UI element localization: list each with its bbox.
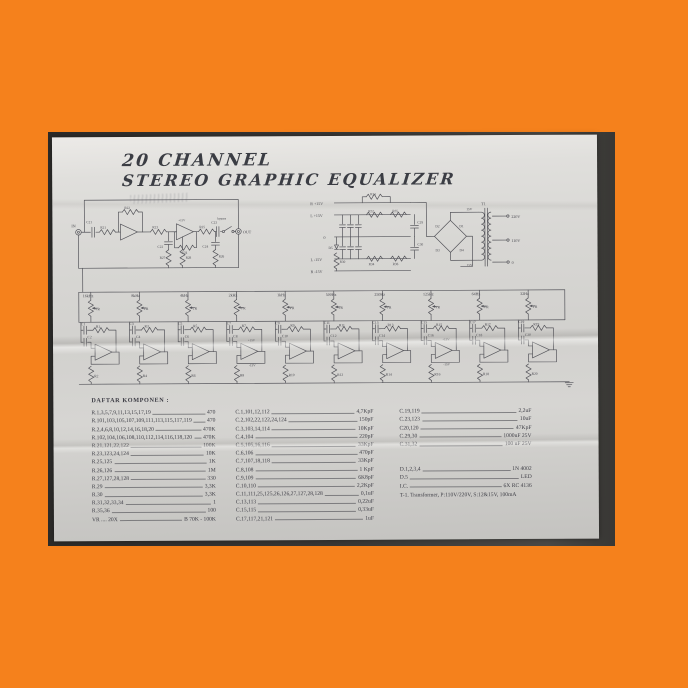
d4-label: D4 [460, 248, 464, 252]
freq-label: 4kHz [180, 293, 189, 298]
freq-label: 16kHz [83, 293, 94, 298]
res-label: R9 [290, 324, 294, 328]
component-value: 33KpF [358, 458, 374, 464]
res-label: R4 [143, 374, 147, 378]
c30-label: C30 [418, 242, 424, 246]
cap-label: C1 [81, 322, 85, 326]
component-designator: C.1,101,12,112 [235, 409, 269, 415]
leader-line [410, 486, 501, 487]
filter-bottom-rail [79, 382, 569, 385]
leader-line [126, 503, 212, 504]
minus-rail-label: -15V [249, 363, 256, 367]
cap-label: C18 [476, 333, 482, 337]
res-label: R2 [94, 374, 98, 378]
component-designator: R.25,125 [92, 459, 113, 465]
minus-rail-label: -15V [443, 362, 450, 366]
tap-0v-label: 0 [512, 260, 514, 265]
c24-label: C24 [203, 245, 209, 249]
transformer-spec-line: T-1. Transformer, P:110V/220V, S:12&15V,… [400, 491, 532, 498]
plus-rail-label: +15V [442, 337, 450, 341]
filter-channel-8: 125HzVRC15R15C16R16+15V-15V [421, 290, 459, 382]
r27-label: R27 [160, 256, 166, 260]
page-title-line1: 20 CHANNEL [121, 150, 273, 171]
freq-label: 250Hz [374, 292, 385, 297]
r23-label: R23 [152, 225, 158, 229]
cap-label: C5 [178, 322, 182, 326]
d1-label: D1 [459, 224, 463, 228]
comp-col-2: C.1,101,12,1124,7KpFC.2,102,22,122,24,12… [235, 407, 374, 522]
cap-label: C11 [324, 321, 330, 325]
component-value: 470pF [359, 450, 373, 456]
component-designator: C.5,105,16,116 [236, 442, 270, 448]
component-value: 3,3K [205, 492, 216, 498]
vr-label: VR [386, 306, 392, 310]
leader-line [105, 495, 203, 497]
r30-label: R30 [340, 260, 346, 264]
res-label: R10 [289, 373, 295, 377]
leader-line [422, 420, 518, 422]
schematic-paper: 20 CHANNEL STEREO GRAPHIC EQUALIZER IN [52, 135, 599, 542]
component-designator: R.30 [92, 492, 103, 498]
leader-line [156, 430, 201, 431]
leader-line [255, 470, 357, 472]
comp-col-3: C.19,1192,2uFC.23,12310uFC20,12047KpFC.2… [399, 406, 531, 498]
component-designator: C.6,106 [236, 451, 254, 457]
filter-capacitor-bank [339, 215, 361, 259]
res-label: R12 [337, 373, 343, 377]
cap-label: C20 [525, 333, 531, 337]
filter-channel-2: 8kHzVRC3R3C4R4 [129, 292, 167, 384]
component-value: 6X RC 4136 [503, 482, 531, 488]
freq-label: 500Hz [326, 292, 337, 297]
component-value: 100 [207, 508, 215, 514]
component-row: VR .... 20XB 70K - 100K [92, 514, 216, 523]
res-label: R13 [388, 323, 394, 327]
filter-channel-6: 500HzVRC11R11C12R12 [324, 291, 362, 383]
leader-line [325, 494, 359, 495]
secondary-15v-bottom-label: 15V [467, 263, 473, 267]
component-value: 1uF [365, 515, 374, 521]
freq-label: 2kHz [229, 292, 238, 297]
component-designator: C.7,107,18,118 [236, 459, 270, 465]
leader-line [419, 445, 503, 446]
res-label: R3 [145, 324, 149, 328]
out-jack-label: OUT [243, 229, 252, 234]
component-value: 1M [208, 467, 216, 473]
res-label: R18 [483, 372, 489, 376]
filter-channel-10: 32HzVRC19R19C20R20 [518, 290, 556, 382]
filter-top-bus [79, 290, 565, 293]
filter-mid-bus [79, 320, 565, 323]
component-value: 330 [207, 475, 215, 481]
cap-label: C16 [428, 333, 434, 337]
component-designator: C.3,103,14,114 [235, 426, 269, 432]
component-value: 33KpF [358, 442, 374, 448]
vr-label: VR [241, 306, 247, 310]
cap-label: C7 [227, 321, 231, 325]
cap-label: C4 [136, 335, 140, 339]
leader-line [105, 487, 203, 489]
c21-label: C21 [86, 220, 92, 224]
component-designator: C.19,119 [399, 409, 419, 415]
component-value: 470 [207, 418, 215, 424]
vr-label: VR [532, 305, 538, 309]
component-value: 1N 4002 [512, 466, 531, 472]
d3-label: D3 [436, 248, 440, 252]
leader-line [255, 454, 357, 456]
page-title-line2: STEREO GRAPHIC EQUALIZER [121, 169, 457, 190]
leader-line [131, 479, 205, 480]
component-value: B 70K - 100K [184, 516, 216, 522]
res-label: R14 [386, 373, 392, 377]
r25-label: R25 [199, 225, 205, 229]
leader-line [255, 437, 357, 439]
opamp2-plus-rail-label: +15V [178, 218, 186, 222]
component-designator: C.11,111,25,125,26,126,27,127,28,128 [236, 491, 323, 497]
filter-channel-7: 250HzVRC13R13C14R14 [372, 291, 410, 383]
leader-line [421, 428, 514, 429]
leader-line [120, 520, 182, 521]
component-value: 2,2KpF [357, 483, 374, 489]
component-value: 470 [207, 410, 215, 416]
leader-line [153, 413, 205, 414]
component-designator: R.2,4,6,8,10,12,14,16,18,20 [91, 426, 153, 432]
component-designator: C.4,104 [236, 434, 254, 440]
cap-label: C15 [421, 320, 427, 324]
c23-label: C23 [211, 221, 217, 225]
component-designator: C.2,102,22,122,24,124 [235, 418, 286, 424]
component-designator: D.5 [400, 475, 408, 481]
component-value: 1 KpF [360, 466, 374, 472]
res-label: R15 [436, 323, 442, 327]
freq-label: 32Hz [520, 291, 529, 296]
cap-label: C6 [185, 335, 189, 339]
cap-label: C12 [330, 334, 336, 338]
component-value: 1K [209, 459, 216, 465]
schematic-photo: 20 CHANNEL STEREO GRAPHIC EQUALIZER IN [48, 132, 615, 546]
cap-label: C19 [518, 320, 524, 324]
component-designator: C.23,123 [399, 417, 420, 423]
freq-label: 125Hz [423, 291, 434, 296]
r22-label: R22 [124, 206, 130, 210]
component-list: DAFTAR KOMPONEN : R.1,3,5,7,9,11,13,15,1… [89, 395, 572, 538]
leader-line [194, 438, 201, 439]
component-designator: R.1,3,5,7,9,11,13,15,17,19 [91, 410, 150, 416]
r28-label: R28 [186, 256, 192, 260]
res-label: R19 [533, 322, 539, 326]
component-value: 47KpF [516, 424, 532, 430]
component-value: 220pF [359, 433, 373, 439]
ground [565, 383, 573, 387]
component-row: C.17,117,21,1211uF [236, 513, 374, 522]
res-label: R7 [242, 324, 246, 328]
leader-line [255, 478, 356, 480]
leader-line [131, 446, 201, 447]
component-value: 4,7KpF [356, 409, 373, 415]
component-designator: R.35,36 [92, 509, 110, 515]
component-value: 0,33uF [358, 507, 374, 513]
component-designator: VR .... 20X [92, 517, 118, 523]
res-label: R1 [96, 325, 100, 329]
component-designator: C.15,115 [236, 508, 256, 514]
leader-line [194, 422, 205, 423]
leader-line [419, 436, 501, 437]
component-designator: I.C. [400, 483, 408, 489]
c22-label: C22 [158, 245, 164, 249]
component-designator: C.17,117,21,121 [236, 516, 273, 522]
component-value: 0,22uF [358, 499, 374, 505]
component-value: 2,2uF [518, 408, 531, 414]
component-value: 10K [206, 451, 216, 457]
vr-label: VR [435, 305, 441, 309]
in-jack-label: IN [71, 223, 75, 228]
component-designator: C.29,30 [400, 433, 418, 439]
res-label: R16 [434, 372, 440, 376]
component-designator: C.13,113 [236, 500, 256, 506]
leader-line [131, 454, 204, 455]
component-value: 1 [213, 500, 216, 506]
rail-label-zero: 0 [323, 235, 325, 240]
component-designator: C.9,109 [236, 475, 254, 481]
leader-line [423, 470, 511, 471]
vr-label: VR [338, 306, 344, 310]
cap-label: C9 [275, 321, 279, 325]
cap-label: C13 [373, 321, 379, 325]
cap-label: C10 [282, 334, 288, 338]
r36-label: R36 [393, 262, 399, 266]
component-value: 10KpF [358, 425, 374, 431]
leader-line [258, 486, 355, 488]
component-designator: C.10,110 [236, 483, 256, 489]
component-designator: C.31,32 [400, 441, 418, 447]
component-value: 3,3K [205, 483, 216, 489]
power-supply: R +15V L +15V 0 L -15V R -15V R31 R32 R3… [310, 191, 520, 274]
transformer-t1 [478, 208, 491, 266]
res-label: R17 [485, 323, 491, 327]
component-value: 100K [203, 443, 215, 449]
freq-label: 1kHz [277, 292, 286, 297]
c29-label: C29 [417, 220, 423, 224]
r35-label: R35 [392, 209, 398, 213]
res-label: R6 [191, 374, 195, 378]
vr-label: VR [143, 307, 149, 311]
component-value: 150pF [359, 417, 373, 423]
res-label: R8 [240, 373, 244, 377]
component-designator: C.8,108 [236, 467, 254, 473]
tap-110v-label: 110V [511, 238, 520, 243]
r21-label: R21 [100, 226, 106, 230]
cap-label: C8 [233, 334, 237, 338]
filter-channel-4: 2kHzVRC7R7C8R8+15V-15V [227, 291, 265, 383]
cap-label: C17 [470, 320, 476, 324]
comp-col-1: R.1,3,5,7,9,11,13,15,17,19470R.101,103,1… [91, 408, 216, 523]
d5-led-label: D5 [329, 246, 333, 250]
comp-col-3a: C.19,1192,2uFC.23,12310uFC20,12047KpFC.2… [399, 406, 531, 448]
cap-label: C2 [87, 335, 91, 339]
tap-220v-label: 220V [511, 214, 520, 219]
secondary-15v-top-label: 15V [466, 207, 472, 211]
component-value: 1000uF 25V [503, 433, 531, 439]
component-designator: C20,120 [399, 425, 418, 431]
circuit-schematic: IN C21 R21 R22 R23 C22 R27 [52, 190, 598, 407]
component-value: 470K [203, 434, 215, 440]
vr-label: VR [95, 307, 101, 311]
component-designator: R.101,103,105,107,109,111,113,115,117,11… [91, 418, 191, 425]
r26-label: R26 [219, 255, 225, 259]
comp-col-3b: D.1,2,3,41N 4002D.5LEDI.C.6X RC 4136 [400, 464, 532, 489]
filter-channel-3: 4kHzVRC5R5C6R6 [178, 292, 216, 384]
component-row: I.C.6X RC 4136 [400, 480, 532, 489]
leader-line [422, 412, 517, 413]
rail-label-l-minus: L -15V [311, 257, 323, 262]
leader-line [258, 503, 356, 505]
vr-label: VR [289, 306, 295, 310]
column-gap [400, 447, 532, 465]
res-label: R20 [532, 372, 538, 376]
leader-line [114, 463, 207, 464]
res-label: R5 [193, 324, 197, 328]
r31-label: R31 [370, 192, 376, 196]
page: { "doc": { "title_line1": "20 CHANNEL", … [0, 0, 688, 688]
component-designator: R.31,32,33,34 [92, 500, 124, 506]
leader-line [114, 471, 206, 472]
vr-label: VR [192, 307, 198, 311]
leader-line [272, 445, 356, 446]
res-label: R11 [339, 323, 345, 327]
freq-label: 64Hz [472, 291, 481, 296]
component-value: LED [521, 474, 532, 480]
leader-line [275, 519, 363, 520]
r34-label: R34 [369, 262, 375, 266]
component-list-heading: DAFTAR KOMPONEN : [91, 397, 169, 404]
component-designator: R.27,127,28,128 [92, 476, 129, 482]
component-designator: D.1,2,3,4 [400, 467, 421, 473]
d2-label: D2 [435, 224, 439, 228]
cap-label: C14 [379, 334, 385, 338]
leader-line [272, 413, 355, 414]
filter-channel-9: 64HzVRC17R17C18R18 [470, 290, 508, 382]
leader-line [112, 512, 206, 513]
component-value: 100 uF 25V [505, 441, 532, 447]
component-designator: R.102,104,106,108,110,112,114,116,118,12… [92, 434, 193, 441]
component-value: 6K8pF [358, 474, 374, 480]
vr-label: VR [484, 305, 490, 309]
component-designator: R.21,121,22,122 [92, 443, 129, 449]
plus-rail-label: +15V [248, 338, 256, 342]
component-value: 470K [203, 426, 215, 432]
t1-label: T1 [481, 201, 485, 206]
rail-label-l-plus: L +15V [310, 213, 323, 218]
rail-label-r-minus: R -15V [311, 269, 323, 274]
bypass-switch-label: bypass [217, 217, 226, 221]
r32-label: R32 [368, 209, 374, 213]
leader-line [272, 429, 356, 430]
leader-line [289, 421, 357, 422]
component-designator: R.23,123,24,124 [92, 451, 129, 457]
component-designator: R.26,126 [92, 468, 113, 474]
filter-channel-5: 1kHzVRC9R9C10R10 [275, 291, 313, 383]
rail-label-r-plus: R +15V [310, 201, 323, 206]
component-value: 0,1uF [361, 491, 374, 497]
filter-channel-1: 16kHzVRC1R1C2R2 [81, 292, 119, 384]
leader-line [258, 511, 356, 513]
leader-line [272, 462, 356, 463]
freq-label: 8kHz [131, 293, 140, 298]
cap-label: C3 [130, 322, 134, 326]
filter-bank: 16kHzVRC1R1C2R28kHzVRC3R3C4R44kHzVRC5R5C… [81, 290, 557, 384]
component-designator: R.29 [92, 484, 103, 490]
input-stage: IN C21 R21 R22 R23 C22 R27 [71, 199, 252, 268]
leader-line [410, 478, 519, 480]
component-value: 10uF [520, 416, 532, 422]
